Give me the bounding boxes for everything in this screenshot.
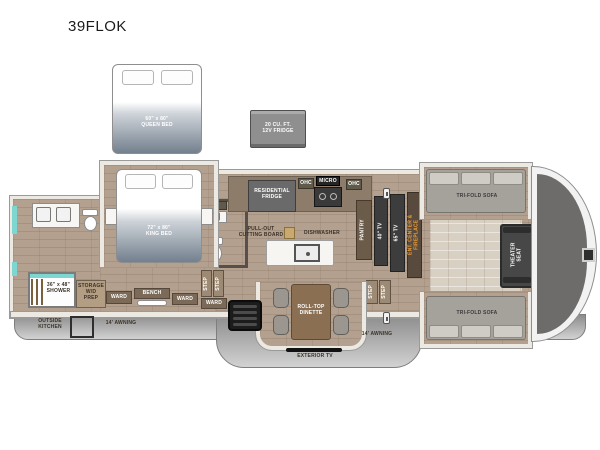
exterior-tv-icon	[286, 348, 342, 352]
cutting-board-icon	[284, 227, 295, 239]
ward-3: WARD	[201, 298, 227, 309]
toilet-bowl-rear	[84, 216, 97, 231]
living-step-1: STEP	[366, 280, 378, 304]
shower-accent	[30, 274, 74, 278]
stove-icon	[314, 187, 342, 207]
king-bed-label: KING BED	[117, 232, 201, 238]
outside-kitchen-door	[70, 316, 94, 338]
bath-sink-right	[56, 207, 71, 222]
exterior-tv-label: EXTERIOR TV	[270, 354, 360, 360]
king-bed: 72" x 80" KING BED	[116, 169, 202, 263]
bath-sink-left	[36, 207, 51, 222]
door-handle-icon-entry	[383, 312, 390, 324]
tv-65: 65" TV	[390, 194, 405, 272]
bedroom-slide: 72" x 80" KING BED	[100, 161, 218, 267]
theater-seat: THEATER SEAT	[500, 224, 534, 288]
shower-door	[31, 279, 43, 305]
pantry: PANTRY	[356, 200, 372, 260]
dinette-chair	[333, 315, 349, 335]
living-step-2: STEP	[379, 280, 391, 304]
nightstand-right	[201, 208, 213, 225]
ward-1: WARD	[106, 291, 132, 304]
shower-label: SHOWER	[43, 289, 74, 295]
residential-fridge: RESIDENTIAL FRIDGE	[248, 180, 296, 212]
outside-kitchen-label: OUTSIDE KITCHEN	[32, 319, 68, 331]
dishwasher-label: DISHWASHER	[296, 231, 348, 237]
awning-right-label: 14' AWNING	[352, 332, 402, 338]
door-handle-icon-top	[383, 188, 390, 199]
pullout-cutting-board-label: PULL-OUT CUTTING BOARD	[232, 227, 290, 239]
optional-queen-bed: 60" x 80" QUEEN BED	[112, 64, 202, 154]
tri-fold-sofa-top: TRI-FOLD SOFA	[426, 169, 526, 213]
sofa-top-label: TRI-FOLD SOFA	[437, 194, 517, 200]
ohc-left: OHC	[298, 178, 314, 189]
tv-40: 40" TV	[374, 196, 388, 266]
ward-2: WARD	[172, 293, 198, 305]
optional-12v-fridge: 20 CU. FT. 12V FRIDGE	[250, 110, 306, 148]
entry-steps	[228, 300, 262, 331]
rear-vanity-counter-accent	[12, 206, 17, 234]
bench: BENCH	[134, 288, 170, 299]
shower-stall: 36" x 48" SHOWER	[28, 272, 76, 308]
floorplan-canvas: 39FLOK 36" x 48" SHOWER STORAGE W/D PREP…	[0, 0, 600, 450]
toilet-icon-rear	[82, 209, 98, 216]
microwave: MICRO	[316, 176, 340, 186]
kitchen-island	[266, 240, 334, 266]
tri-fold-sofa-bottom: TRI-FOLD SOFA	[426, 296, 526, 340]
dinette-chair	[273, 315, 289, 335]
dinette-chair	[333, 288, 349, 308]
queen-bed-label: QUEEN BED	[113, 123, 201, 129]
dinette-chair	[273, 288, 289, 308]
ohc-right: OHC	[346, 179, 362, 190]
dinette-slide: ROLL-TOP DINETTE	[256, 282, 366, 350]
storage-wd-prep: STORAGE W/D PREP	[76, 280, 106, 308]
sofa-bottom-label: TRI-FOLD SOFA	[437, 311, 517, 317]
bench-seat	[137, 300, 167, 306]
loft-step-2: STEP	[213, 270, 224, 297]
awning-left-label: 14' AWNING	[96, 321, 146, 327]
page-title: 39FLOK	[68, 18, 127, 35]
sofa-slide-top: TRI-FOLD SOFA	[420, 163, 532, 219]
rear-counter-accent-2	[12, 262, 17, 276]
loft-step-1: STEP	[201, 270, 212, 297]
roll-top-dinette-table: ROLL-TOP DINETTE	[291, 284, 331, 340]
sofa-slide-bottom: TRI-FOLD SOFA	[420, 292, 532, 348]
island-sink	[294, 244, 320, 262]
hitch-pin	[582, 248, 595, 262]
